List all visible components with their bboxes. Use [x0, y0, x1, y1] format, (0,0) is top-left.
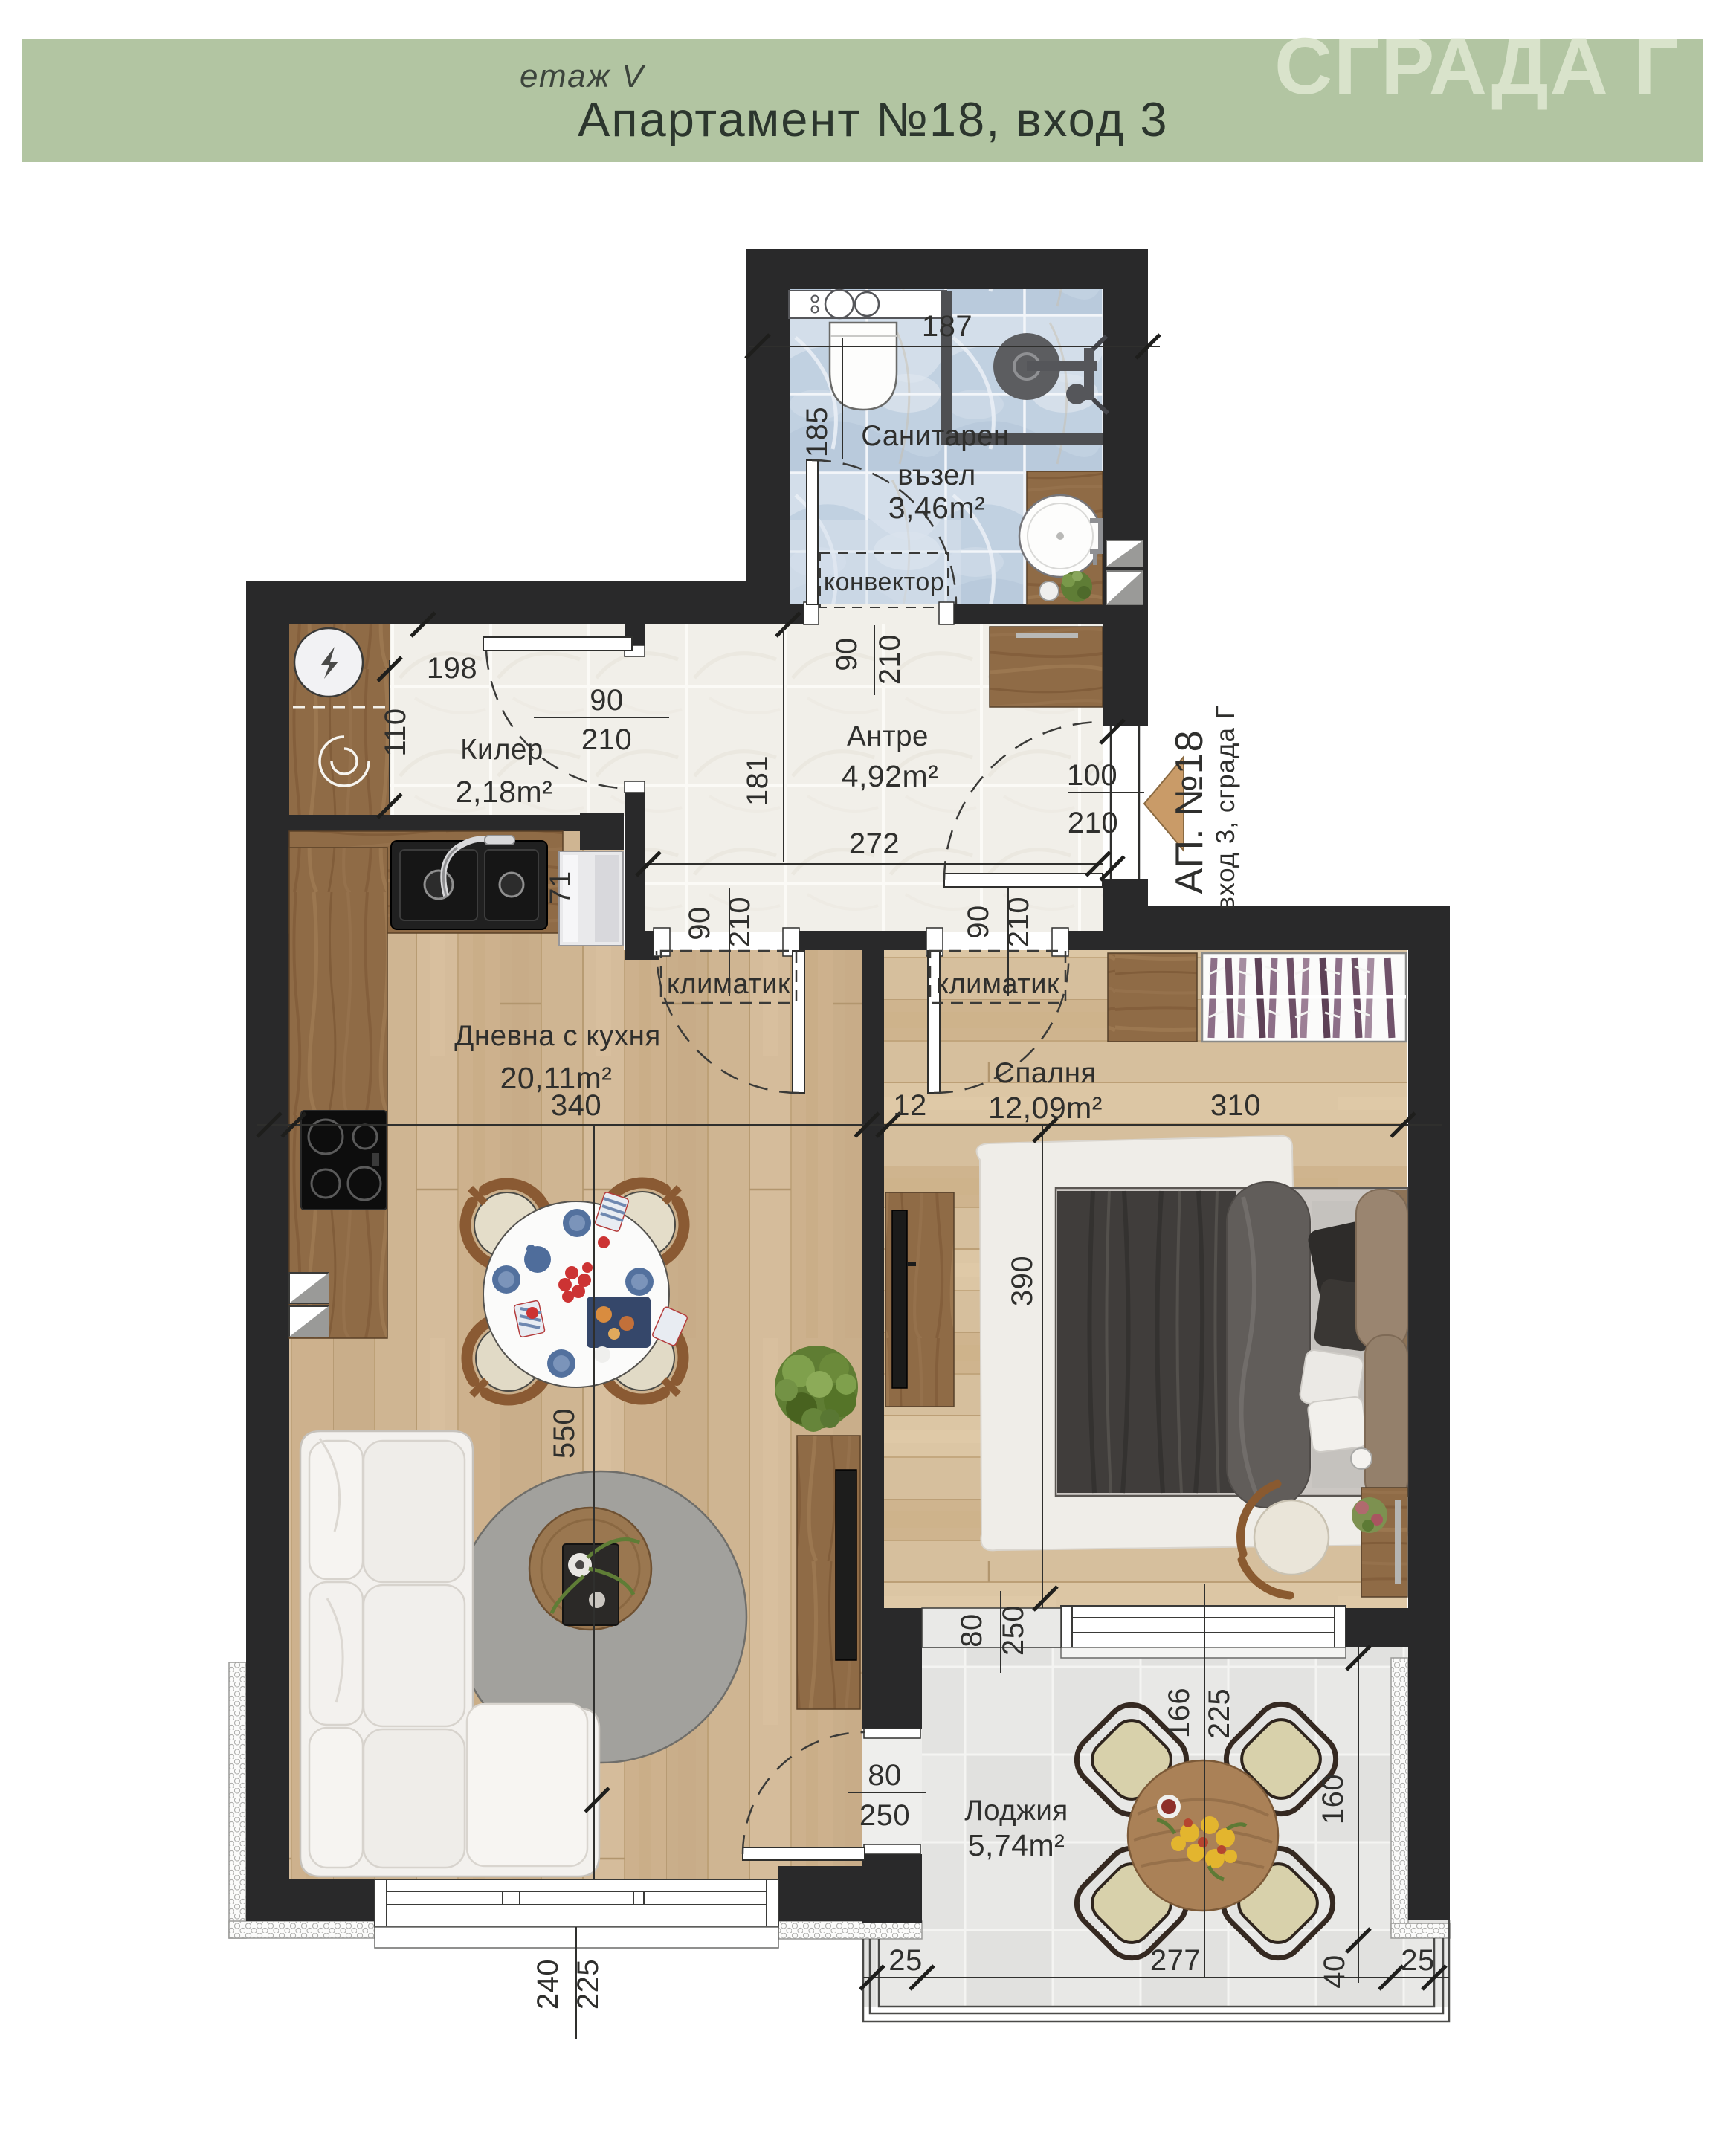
- svg-text:210: 210: [1068, 807, 1118, 839]
- svg-text:5,74m²: 5,74m²: [968, 1828, 1065, 1862]
- svg-text:4,92m²: 4,92m²: [842, 759, 939, 793]
- svg-text:90: 90: [830, 637, 863, 671]
- svg-text:185: 185: [801, 407, 833, 457]
- svg-text:СГРАДА Г: СГРАДА Г: [1274, 21, 1680, 111]
- svg-text:210: 210: [581, 723, 632, 756]
- svg-text:3,46m²: 3,46m²: [888, 491, 986, 525]
- svg-text:110: 110: [379, 708, 412, 756]
- svg-text:2,18m²: 2,18m²: [456, 775, 553, 809]
- svg-text:390: 390: [1006, 1256, 1039, 1306]
- svg-text:етаж V: етаж V: [520, 58, 646, 94]
- svg-text:Санитарен: Санитарен: [861, 420, 1010, 452]
- svg-text:12: 12: [893, 1089, 927, 1122]
- svg-text:240: 240: [532, 1959, 564, 2010]
- svg-text:277: 277: [1150, 1944, 1201, 1977]
- svg-text:160: 160: [1317, 1774, 1349, 1824]
- svg-text:225: 225: [572, 1959, 604, 2010]
- svg-text:80: 80: [955, 1613, 988, 1647]
- svg-text:210: 210: [874, 634, 906, 685]
- svg-text:550: 550: [548, 1408, 581, 1459]
- svg-text:198: 198: [427, 652, 477, 685]
- svg-text:210: 210: [723, 897, 756, 947]
- svg-text:Дневна с кухня: Дневна с кухня: [454, 1020, 660, 1052]
- svg-text:90: 90: [590, 684, 624, 717]
- svg-text:АП. №18: АП. №18: [1168, 730, 1211, 894]
- svg-text:климатик: климатик: [936, 969, 1059, 1000]
- svg-text:Антре: Антре: [847, 720, 929, 752]
- svg-text:възел: възел: [897, 459, 976, 491]
- svg-text:конвектор: конвектор: [824, 568, 944, 596]
- svg-text:12,09m²: 12,09m²: [988, 1091, 1103, 1125]
- svg-text:187: 187: [922, 310, 972, 343]
- svg-text:181: 181: [741, 755, 774, 806]
- svg-text:310: 310: [1210, 1089, 1261, 1122]
- svg-text:90: 90: [683, 906, 716, 940]
- svg-text:80: 80: [868, 1759, 902, 1792]
- svg-text:Лоджия: Лоджия: [964, 1795, 1068, 1827]
- svg-text:250: 250: [997, 1605, 1030, 1656]
- svg-text:166: 166: [1163, 1688, 1196, 1738]
- svg-text:272: 272: [849, 827, 900, 860]
- svg-text:Апартамент №18, вход 3: Апартамент №18, вход 3: [578, 92, 1168, 146]
- svg-text:вход 3, сграда Г: вход 3, сграда Г: [1211, 704, 1240, 910]
- svg-text:Спалня: Спалня: [994, 1057, 1097, 1089]
- svg-text:71: 71: [544, 871, 577, 905]
- svg-text:25: 25: [1401, 1944, 1435, 1977]
- svg-text:90: 90: [962, 905, 995, 939]
- svg-text:Килер: Килер: [460, 734, 543, 766]
- svg-text:40: 40: [1318, 1955, 1351, 1989]
- svg-text:210: 210: [1002, 897, 1035, 947]
- svg-text:250: 250: [859, 1799, 910, 1832]
- svg-text:225: 225: [1203, 1688, 1236, 1739]
- svg-text:25: 25: [888, 1944, 923, 1977]
- svg-text:100: 100: [1067, 759, 1117, 792]
- svg-text:20,11m²: 20,11m²: [500, 1061, 613, 1095]
